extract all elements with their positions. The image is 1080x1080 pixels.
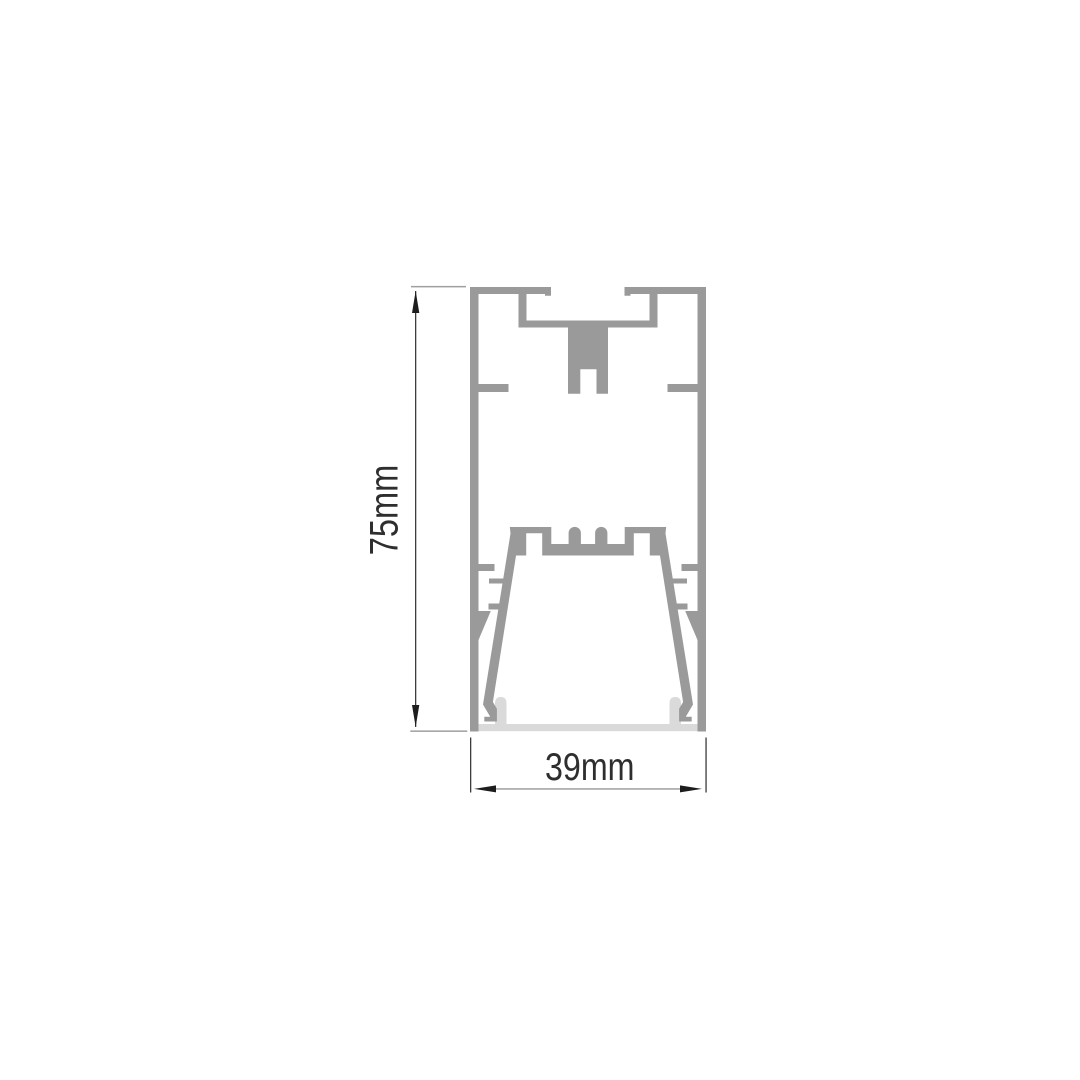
svg-text:39mm: 39mm <box>545 746 635 789</box>
svg-text:75mm: 75mm <box>362 465 406 556</box>
